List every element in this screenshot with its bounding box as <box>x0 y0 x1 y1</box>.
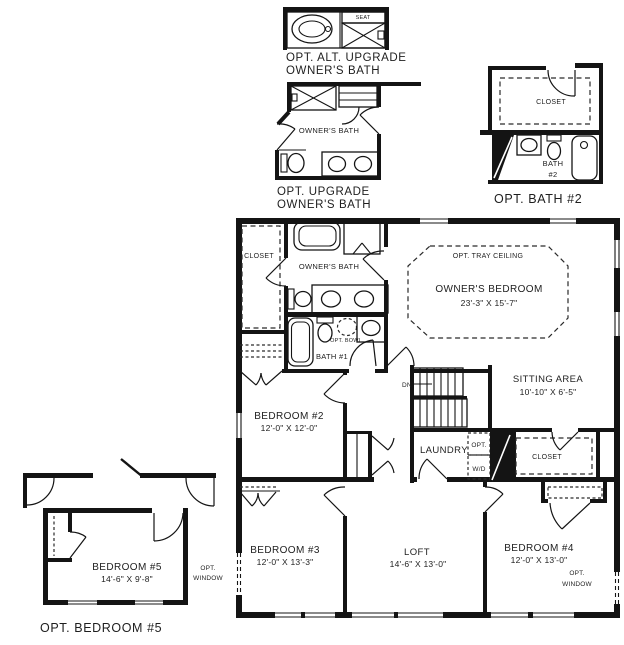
sink-icon <box>517 135 541 155</box>
window <box>613 240 621 268</box>
opt-label: OPT. <box>471 442 486 449</box>
owners-closet: CLOSET <box>242 226 286 328</box>
window <box>68 599 97 606</box>
hall-closet: CLOSET <box>516 432 592 474</box>
seat-box: SEAT <box>342 12 385 23</box>
caption-opt-alt-upgrade-line1: OPT. ALT. UPGRADE <box>286 52 407 64</box>
window <box>275 611 301 619</box>
bedroom5-closet <box>43 513 86 562</box>
door-arc <box>485 487 503 512</box>
linen-shelves <box>339 86 377 124</box>
chase-shaft <box>490 432 512 482</box>
bath1-label: BATH #1 <box>316 352 348 361</box>
double-sink-icon <box>322 152 379 176</box>
sitting-area: SITTING AREA 10'-10" X 6'-5" <box>513 374 584 397</box>
caption-opt-upgrade-line1: OPT. UPGRADE <box>277 186 370 198</box>
bedroom5-walls <box>43 508 188 606</box>
owners-bedroom-dims: 23'-3" X 15'-7" <box>461 298 518 308</box>
bedroom5-dims: 14'-6" X 9'-8" <box>101 574 153 584</box>
loft-dims: 14'-6" X 13'-0" <box>390 559 447 569</box>
opt-bowl-label: OPT. BOWL <box>330 338 362 344</box>
owners-bath-upgrade-label: OWNER'S BATH <box>299 126 359 135</box>
caption-opt-bedroom5: OPT. BEDROOM #5 <box>40 621 162 635</box>
loft: LOFT 14'-6" X 13'-0" <box>390 547 447 569</box>
opt-window-dashed <box>613 572 621 604</box>
window <box>398 611 443 619</box>
double-sink-icon <box>312 285 388 313</box>
shower-icon <box>342 23 385 48</box>
closet-shelf <box>240 345 282 357</box>
main-floor-plan: CLOSET OWNER'S BATH OPT. BOWL BATH #1 <box>235 217 621 619</box>
sitting-area-label: SITTING AREA <box>513 374 584 385</box>
owners-bedroom-label: OWNER'S BEDROOM <box>435 284 542 295</box>
door-arc <box>387 347 414 366</box>
window <box>533 611 574 619</box>
tub-icon <box>294 222 340 250</box>
window <box>491 611 528 619</box>
diagram-opt-upgrade-bath: OWNER'S BATH OPT. UPGRADE OWNER'S BATH <box>275 82 421 211</box>
door-arc <box>360 107 379 134</box>
owners-bath-label: OWNER'S BATH <box>299 262 359 271</box>
shower-icon <box>291 86 336 110</box>
owners-bedroom: OPT. TRAY CEILING OWNER'S BEDROOM 23'-3"… <box>387 246 568 366</box>
door-arc <box>419 459 447 479</box>
window <box>613 312 621 336</box>
window <box>135 599 163 606</box>
bedroom2-label: BEDROOM #2 <box>254 411 324 422</box>
tub-icon <box>292 15 332 43</box>
tray-ceiling-label: OPT. TRAY CEILING <box>453 253 523 260</box>
linen-closet <box>357 434 394 477</box>
toilet-icon <box>288 289 311 309</box>
closet-shelf <box>548 487 602 498</box>
window <box>235 413 243 438</box>
door-arc <box>277 124 295 150</box>
diagram-opt-alt-upgrade-bath: SEAT OPT. ALT. UPGRADE OWNER'S BATH <box>283 7 407 77</box>
bedroom3-label: BEDROOM #3 <box>250 545 320 556</box>
door-arc <box>552 432 578 450</box>
door-arc <box>363 251 384 280</box>
hall-closet-label: CLOSET <box>532 454 562 461</box>
laundry: LAUNDRY OPT. W/D <box>419 433 490 479</box>
window <box>550 217 576 225</box>
seat-label: SEAT <box>356 15 371 21</box>
owners-bath-main: OWNER'S BATH <box>288 222 388 313</box>
open-door-leaf <box>121 459 143 477</box>
door-arc <box>324 373 345 403</box>
door-arc <box>550 503 590 529</box>
bath2-label-line2: #2 <box>549 170 558 179</box>
bifold-doors <box>240 371 282 385</box>
opt-bowl-icon <box>338 319 357 336</box>
bedroom5-label: BEDROOM #5 <box>92 562 162 573</box>
opt-window-label-line2: WINDOW <box>562 581 592 588</box>
caption-opt-alt-upgrade-line2: OWNER'S BATH <box>286 65 380 77</box>
closet-shelf <box>236 487 280 491</box>
bedroom3-dims: 12'-0" X 13'-3" <box>257 557 314 567</box>
caption-opt-upgrade-line2: OWNER'S BATH <box>277 199 371 211</box>
dn-label: DN <box>402 382 412 389</box>
window <box>305 611 335 619</box>
opt-window-label-line2: WINDOW <box>193 575 223 582</box>
wd-label: W/D <box>472 466 485 473</box>
toilet-icon <box>547 135 561 160</box>
closet-door-arc <box>548 70 575 96</box>
bedroom3: BEDROOM #3 12'-0" X 13'-3" <box>236 487 345 567</box>
loft-label: LOFT <box>404 547 430 558</box>
hall-walls <box>23 459 216 508</box>
laundry-label: LAUNDRY <box>420 445 468 456</box>
door-arc <box>324 487 345 516</box>
bedroom2-dims: 12'-0" X 12'-0" <box>261 423 318 433</box>
sitting-area-dims: 10'-10" X 6'-5" <box>520 387 577 397</box>
opt-window-label-line1: OPT. <box>569 570 584 577</box>
entry-door-arc <box>154 513 183 541</box>
tub-icon <box>288 318 313 366</box>
floor-plan-drawing: SEAT OPT. ALT. UPGRADE OWNER'S BATH <box>0 0 624 645</box>
toilet-icon <box>279 150 306 173</box>
bedroom4-dims: 12'-0" X 13'-0" <box>511 555 568 565</box>
shower-icon <box>344 222 380 254</box>
owners-closet-label: CLOSET <box>244 253 274 260</box>
bifold-doors <box>240 492 276 506</box>
bath2-closet-label: CLOSET <box>536 99 566 106</box>
tub-icon <box>572 136 597 180</box>
caption-opt-bath2: OPT. BATH #2 <box>494 192 582 206</box>
bath1: OPT. BOWL BATH #1 <box>288 316 387 366</box>
diagram-opt-bath2: CLOSET BATH #2 OPT. BATH #2 <box>480 63 603 206</box>
diagram-opt-bedroom5: BEDROOM #5 14'-6" X 9'-8" OPT. WINDOW OP… <box>23 459 224 635</box>
opt-window-label-line1: OPT. <box>200 565 215 572</box>
window <box>352 611 394 619</box>
window <box>420 217 448 225</box>
floor-plan-page: SEAT OPT. ALT. UPGRADE OWNER'S BATH <box>0 0 624 645</box>
bath2-label-line1: BATH <box>543 159 564 168</box>
door-arc <box>186 478 214 506</box>
opt-window-dashed <box>235 553 243 595</box>
bedroom4-label: BEDROOM #4 <box>504 543 574 554</box>
door-arc <box>27 478 54 505</box>
